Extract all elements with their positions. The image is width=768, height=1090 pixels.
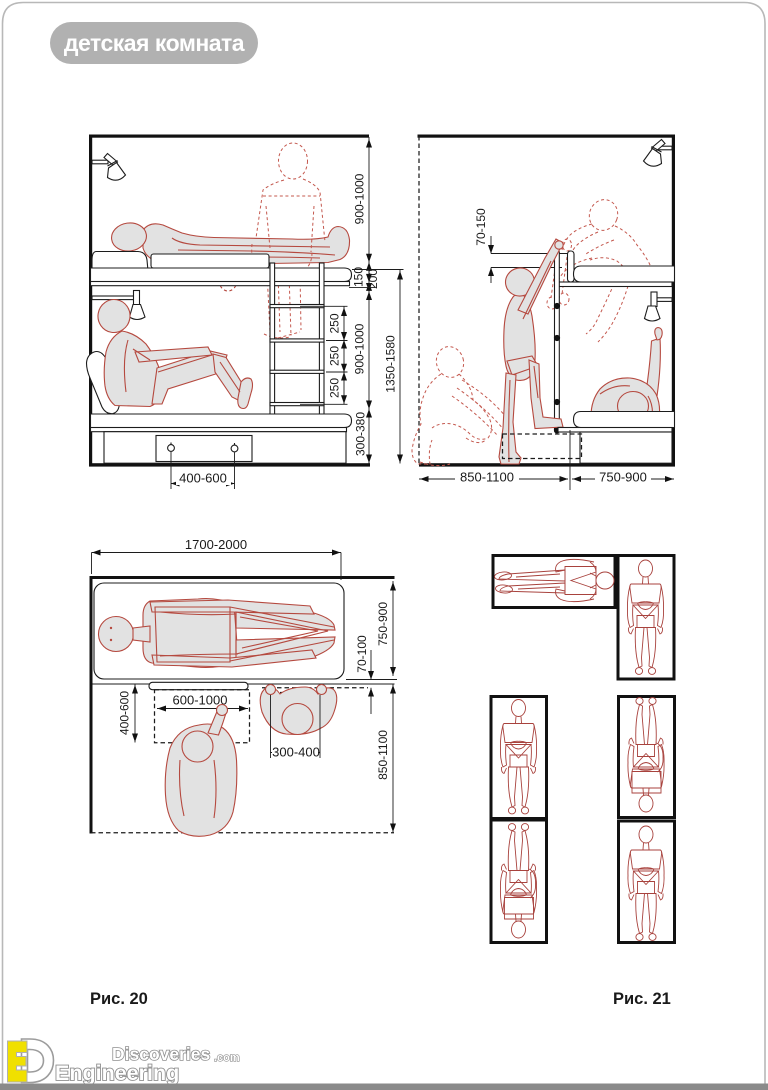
svg-text:.com: .com xyxy=(214,1052,240,1064)
svg-text:1700-2000: 1700-2000 xyxy=(185,537,247,552)
svg-text:Engineering: Engineering xyxy=(55,1061,179,1085)
svg-text:850-1100: 850-1100 xyxy=(376,730,390,780)
svg-text:1350-1580: 1350-1580 xyxy=(384,335,398,393)
svg-text:900-1000: 900-1000 xyxy=(353,173,367,224)
svg-text:850-1100: 850-1100 xyxy=(460,470,514,485)
svg-text:300-400: 300-400 xyxy=(272,745,320,760)
svg-text:200: 200 xyxy=(366,269,380,289)
svg-text:750-900: 750-900 xyxy=(599,470,647,485)
svg-text:250: 250 xyxy=(328,378,342,398)
svg-text:750-900: 750-900 xyxy=(376,602,390,646)
svg-text:400-600: 400-600 xyxy=(118,691,132,735)
svg-text:150: 150 xyxy=(352,267,366,287)
svg-text:400-600: 400-600 xyxy=(179,471,227,486)
svg-text:70-100: 70-100 xyxy=(355,635,369,673)
svg-text:300-380: 300-380 xyxy=(354,412,368,456)
svg-text:900-1000: 900-1000 xyxy=(353,323,367,374)
svg-text:250: 250 xyxy=(328,313,342,333)
svg-text:детская комната: детская комната xyxy=(64,30,245,56)
svg-text:70-150: 70-150 xyxy=(474,208,488,246)
svg-text:Рис. 21: Рис. 21 xyxy=(613,990,671,1008)
svg-text:Рис. 20: Рис. 20 xyxy=(90,990,148,1008)
svg-text:250: 250 xyxy=(328,346,342,366)
